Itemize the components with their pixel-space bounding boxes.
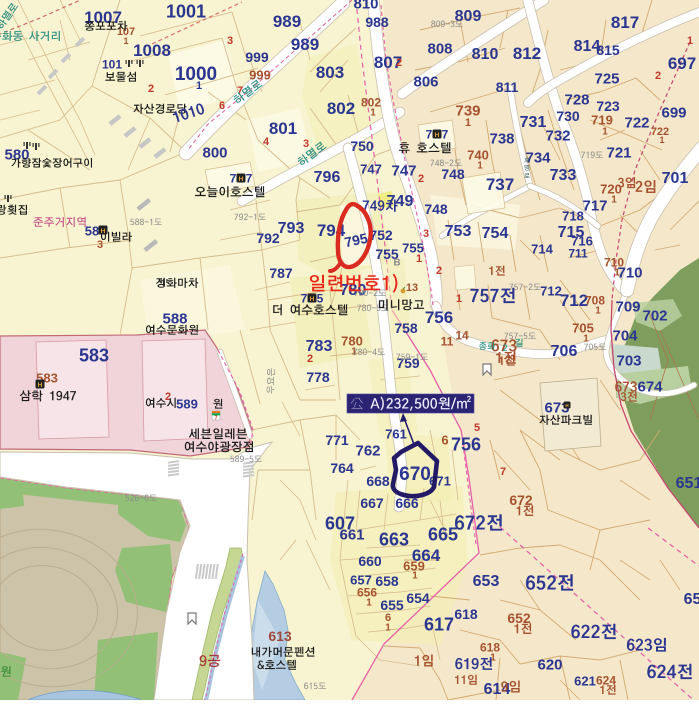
svg-text:699: 699 <box>661 104 686 121</box>
svg-text:802: 802 <box>327 99 355 118</box>
svg-text:752: 752 <box>369 227 393 243</box>
svg-text:704: 704 <box>612 327 638 344</box>
svg-text:5: 5 <box>317 291 324 305</box>
svg-text:663: 663 <box>379 530 409 550</box>
svg-text:703: 703 <box>616 352 641 369</box>
svg-text:670: 670 <box>399 464 431 485</box>
svg-text:734: 734 <box>525 149 551 166</box>
svg-text:719: 719 <box>591 113 613 128</box>
svg-text:7: 7 <box>230 171 237 185</box>
svg-text:706: 706 <box>551 343 578 360</box>
svg-text:7: 7 <box>500 466 506 478</box>
svg-text:658: 658 <box>375 573 399 589</box>
svg-text:808: 808 <box>427 40 452 57</box>
svg-text:665: 665 <box>428 525 458 545</box>
svg-text:817: 817 <box>611 13 639 32</box>
svg-text:809: 809 <box>455 8 482 25</box>
svg-text:H: H <box>239 176 244 183</box>
svg-text:7: 7 <box>246 171 253 185</box>
svg-text:652: 652 <box>507 610 531 626</box>
svg-text:7: 7 <box>426 127 433 141</box>
svg-text:810: 810 <box>472 46 499 63</box>
svg-text:1: 1 <box>602 127 608 138</box>
svg-text:718: 718 <box>562 209 584 224</box>
svg-text:717: 717 <box>582 197 607 214</box>
svg-text:3: 3 <box>227 35 233 47</box>
svg-text:1: 1 <box>416 253 422 265</box>
svg-text:702: 702 <box>642 307 667 324</box>
svg-text:737: 737 <box>486 175 514 194</box>
svg-text:989: 989 <box>273 12 301 31</box>
svg-text:811: 811 <box>496 79 519 95</box>
svg-text:801: 801 <box>269 119 297 138</box>
svg-text:712: 712 <box>560 291 588 310</box>
svg-text:731: 731 <box>520 114 547 131</box>
svg-text:7: 7 <box>215 416 218 422</box>
svg-text:1: 1 <box>412 571 418 582</box>
svg-text:580: 580 <box>4 146 29 163</box>
svg-text:988: 988 <box>365 14 389 30</box>
svg-text:621: 621 <box>574 674 596 689</box>
svg-text:H: H <box>310 296 315 303</box>
svg-text:618: 618 <box>454 606 478 622</box>
svg-text:H: H <box>38 382 43 389</box>
svg-text:1: 1 <box>611 195 617 206</box>
svg-text:792: 792 <box>256 230 280 246</box>
svg-text:762: 762 <box>355 442 380 459</box>
svg-text:738: 738 <box>489 130 514 147</box>
svg-text:655: 655 <box>380 597 404 613</box>
svg-text:701: 701 <box>662 170 689 187</box>
svg-text:771: 771 <box>325 432 349 448</box>
svg-text:750: 750 <box>350 138 374 154</box>
svg-text:654: 654 <box>406 590 430 606</box>
svg-text:756: 756 <box>451 435 481 455</box>
svg-text:H: H <box>101 228 106 235</box>
svg-text:B: B <box>393 258 400 269</box>
svg-text:H: H <box>435 132 440 139</box>
svg-text:4: 4 <box>263 136 270 148</box>
svg-text:1: 1 <box>366 598 372 609</box>
svg-text:730: 730 <box>556 108 580 124</box>
svg-text:1: 1 <box>123 36 128 46</box>
svg-text:1: 1 <box>370 108 376 119</box>
svg-text:2: 2 <box>148 83 154 95</box>
svg-text:764: 764 <box>330 460 354 476</box>
svg-text:999: 999 <box>245 49 269 65</box>
svg-text:1: 1 <box>196 80 202 92</box>
svg-text:728: 728 <box>564 91 589 108</box>
svg-text:756: 756 <box>425 308 453 327</box>
svg-text:617: 617 <box>424 615 454 635</box>
svg-text:667: 667 <box>360 495 384 511</box>
svg-text:748: 748 <box>424 201 448 217</box>
svg-text:778: 778 <box>306 369 330 385</box>
svg-text:2: 2 <box>436 265 442 277</box>
svg-text:810: 810 <box>353 0 378 12</box>
svg-text:709: 709 <box>615 298 640 315</box>
svg-text:5: 5 <box>474 422 480 434</box>
svg-text:6: 6 <box>219 100 225 112</box>
svg-text:1: 1 <box>465 117 471 129</box>
svg-text:793: 793 <box>278 220 305 237</box>
svg-text:1: 1 <box>385 623 391 634</box>
svg-text:1: 1 <box>477 161 483 172</box>
svg-text:11: 11 <box>441 334 454 348</box>
svg-text:672: 672 <box>509 492 533 508</box>
svg-text:589: 589 <box>176 397 198 412</box>
svg-text:747: 747 <box>391 162 416 179</box>
svg-text:721: 721 <box>606 144 631 161</box>
svg-text:588: 588 <box>162 310 187 327</box>
svg-text:748: 748 <box>441 166 465 182</box>
svg-text:725: 725 <box>594 70 619 87</box>
svg-text:711: 711 <box>568 246 588 260</box>
svg-text:999: 999 <box>249 68 271 83</box>
svg-text:723: 723 <box>596 98 620 114</box>
svg-text:58: 58 <box>85 224 99 239</box>
svg-text:733: 733 <box>550 167 577 184</box>
svg-text:1008: 1008 <box>133 41 171 60</box>
svg-text:3: 3 <box>423 228 429 240</box>
svg-text:660: 660 <box>358 553 382 569</box>
svg-text:1: 1 <box>614 268 620 279</box>
svg-text:732: 732 <box>545 127 570 144</box>
svg-text:761: 761 <box>385 427 407 442</box>
svg-text:787: 787 <box>269 265 293 281</box>
svg-text:3: 3 <box>303 138 309 150</box>
svg-text:1: 1 <box>351 347 357 358</box>
svg-text:806: 806 <box>413 73 438 90</box>
svg-text:753: 753 <box>445 223 472 240</box>
svg-text:747: 747 <box>360 162 382 177</box>
svg-text:613: 613 <box>268 628 292 644</box>
svg-text:1001: 1001 <box>166 2 206 22</box>
svg-text:803: 803 <box>316 63 344 82</box>
svg-text:14: 14 <box>455 328 469 342</box>
svg-text:697: 697 <box>668 54 696 73</box>
svg-text:7: 7 <box>301 291 308 305</box>
svg-text:796: 796 <box>314 169 341 186</box>
svg-text:714: 714 <box>531 242 553 257</box>
svg-text:758: 758 <box>394 320 418 336</box>
svg-text:712: 712 <box>540 284 562 299</box>
svg-text:1: 1 <box>583 334 589 345</box>
svg-text:2: 2 <box>655 70 661 82</box>
svg-text:2: 2 <box>307 353 313 365</box>
svg-text:815: 815 <box>596 42 620 58</box>
svg-text:812: 812 <box>513 44 541 63</box>
svg-text:H: H <box>565 403 568 408</box>
svg-text:650: 650 <box>684 591 699 608</box>
svg-text:2: 2 <box>396 57 402 69</box>
svg-text:6: 6 <box>441 433 448 448</box>
svg-text:674: 674 <box>637 378 663 395</box>
svg-text:624: 624 <box>596 673 616 687</box>
svg-text:754: 754 <box>482 225 509 242</box>
svg-text:1: 1 <box>659 135 664 145</box>
svg-text:1: 1 <box>687 35 693 47</box>
svg-text:13: 13 <box>406 282 418 294</box>
svg-text:2: 2 <box>418 173 424 185</box>
svg-text:101: 101 <box>102 57 122 71</box>
svg-text:989: 989 <box>291 35 319 54</box>
svg-text:620: 620 <box>537 656 562 673</box>
svg-text:668: 668 <box>366 473 390 489</box>
svg-text:661: 661 <box>339 526 364 543</box>
svg-text:651: 651 <box>676 475 699 492</box>
svg-text:800: 800 <box>202 144 227 161</box>
svg-text:583: 583 <box>79 346 109 366</box>
svg-text:7: 7 <box>442 127 449 141</box>
svg-text:3: 3 <box>97 239 103 251</box>
svg-text:653: 653 <box>473 573 500 590</box>
svg-text:722: 722 <box>624 114 649 131</box>
svg-text:1: 1 <box>595 306 601 317</box>
svg-text:1: 1 <box>456 293 462 305</box>
